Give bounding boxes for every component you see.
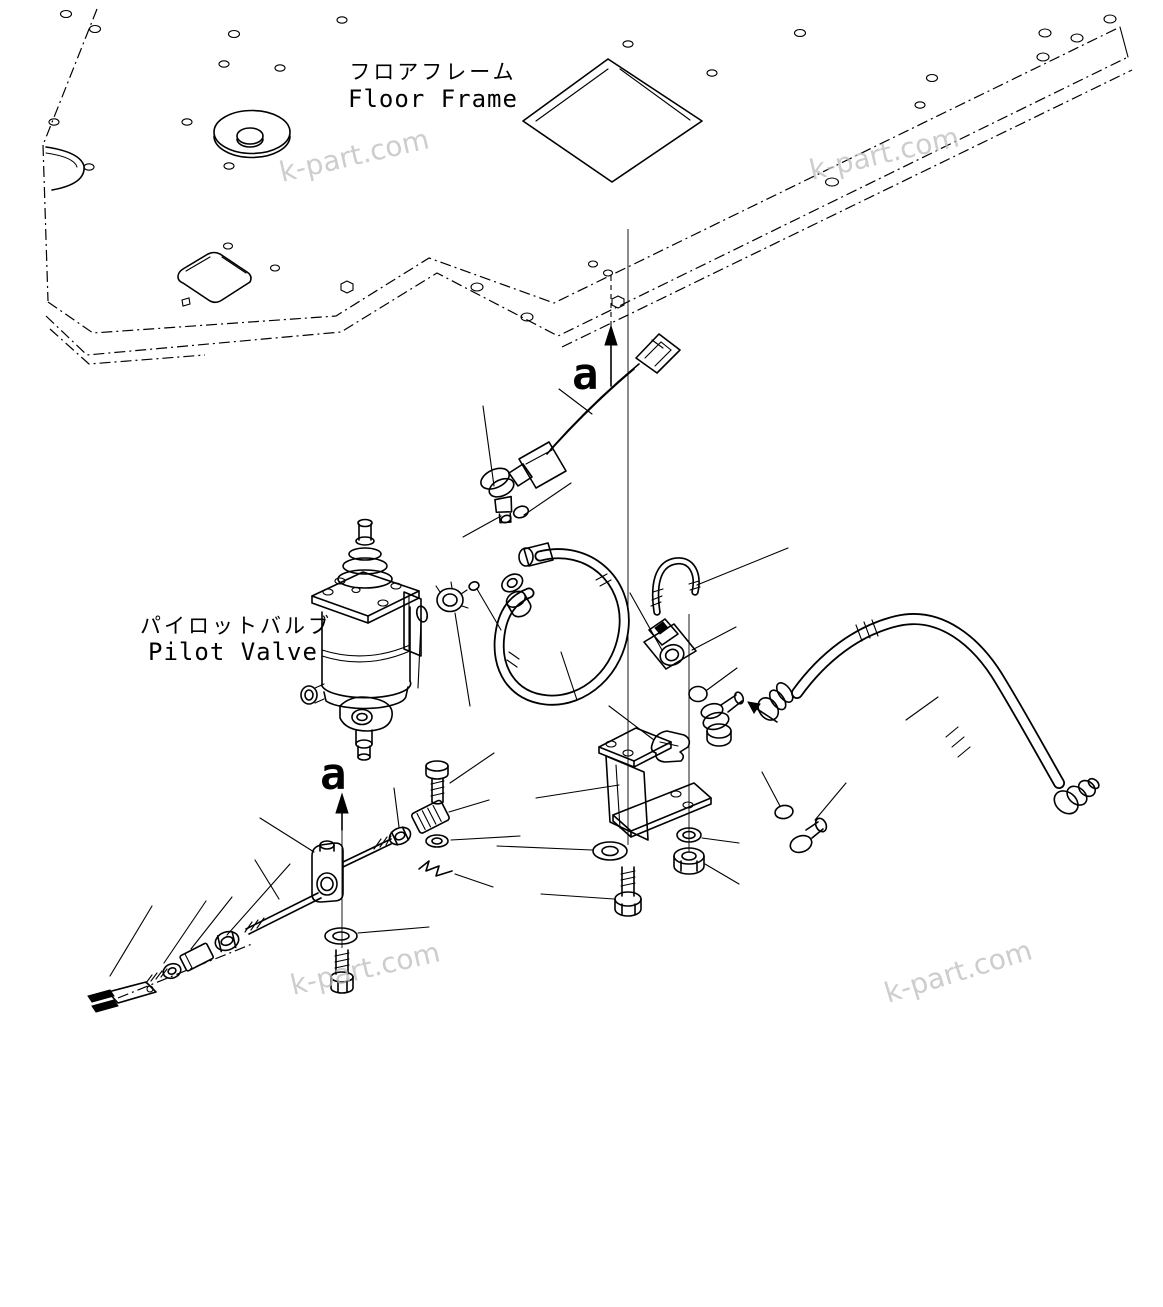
- floor-frame-label-jp: フロアフレーム: [349, 60, 516, 84]
- detail-marker-upper: a: [572, 349, 599, 400]
- joint-fitting: [630, 593, 736, 669]
- view-arrow-lower: a: [320, 749, 348, 830]
- pressure-switch: [478, 406, 566, 527]
- watermark-text: k-part.com: [806, 120, 962, 186]
- bolt: [541, 867, 641, 916]
- washer: [677, 828, 739, 843]
- loop-hose: [468, 543, 624, 700]
- pilot-valve-label-en: Pilot Valve: [148, 638, 318, 666]
- exploded-parts-diagram: a a: [0, 0, 1163, 1307]
- pilot-valve: [301, 520, 421, 761]
- spacer: [411, 799, 450, 834]
- floor-frame: [43, 9, 1132, 364]
- o-ring: [463, 483, 571, 537]
- watermark-text: k-part.com: [880, 934, 1035, 1010]
- hydraulic-hose: [751, 619, 1102, 820]
- o-ring: [762, 772, 794, 820]
- cotter-pin: [419, 861, 452, 876]
- nut: [674, 848, 739, 884]
- plug-bolt: [788, 783, 846, 855]
- plug-fitting: [436, 582, 470, 706]
- floor-frame-label-en: Floor Frame: [348, 85, 518, 113]
- o-ring: [689, 668, 737, 702]
- watermark-text: k-part.com: [276, 122, 432, 188]
- o-ring: [415, 605, 429, 688]
- floor-frame-boss: [214, 111, 290, 158]
- watermark-text: k-part.com: [287, 935, 443, 1001]
- washer: [497, 842, 627, 860]
- pilot-valve-label-jp: パイロットバルブ: [140, 614, 332, 638]
- spacer: [179, 943, 213, 972]
- detail-marker-lower: a: [320, 749, 347, 800]
- u-bolt: [651, 548, 788, 612]
- wiring-harness: [547, 334, 680, 454]
- nut: [161, 961, 183, 980]
- washer: [426, 835, 448, 847]
- mounting-bracket: [536, 728, 711, 840]
- bolt: [426, 761, 448, 804]
- diagram-canvas: a a: [0, 0, 1163, 1307]
